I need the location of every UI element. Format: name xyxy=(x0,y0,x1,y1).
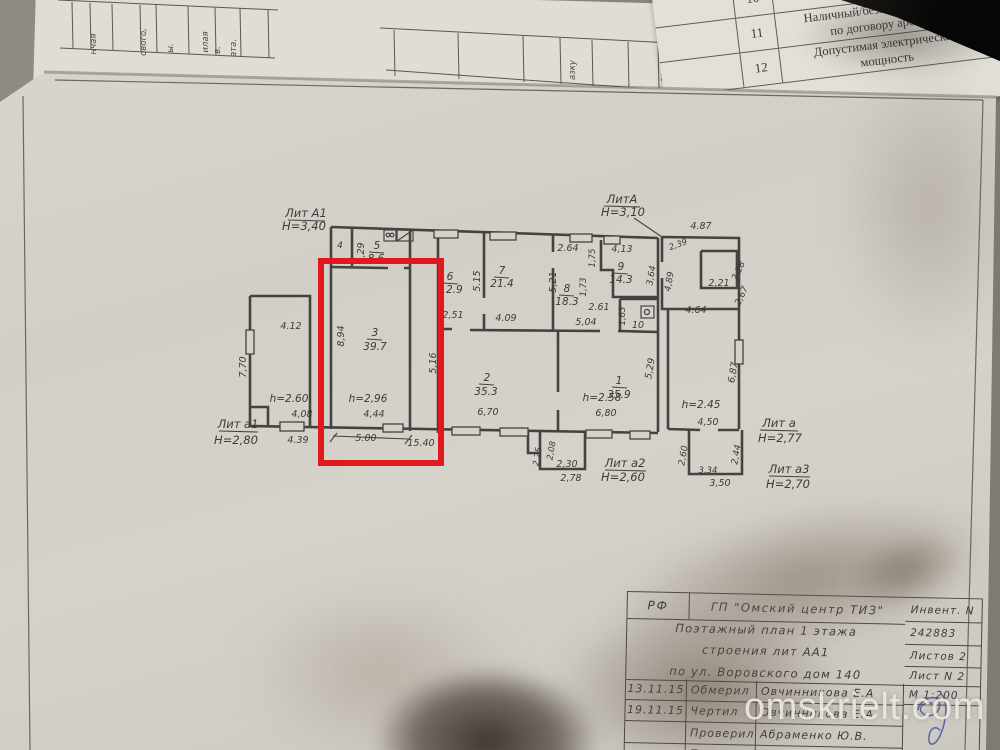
title-block-date: 19.11.15 xyxy=(625,699,686,722)
inventory-label: Инвент. N xyxy=(905,598,982,624)
sheet-number: Лист N 2 xyxy=(904,667,981,688)
watermark: omskrielt.com xyxy=(744,686,985,729)
title-line-2: строения лит АА1 xyxy=(702,640,830,664)
title-block-date: 13.11.15 xyxy=(626,678,687,701)
title-block-role: Принял xyxy=(685,744,755,750)
row-number: 12 xyxy=(739,49,783,88)
inventory-number: 242883 xyxy=(905,622,982,647)
photographed-floor-plan-document: 10 Договор арендыгода 11 Наличный/безнал… xyxy=(0,0,1000,750)
drawing-title: Поэтажный план 1 этажа строения лит АА1 … xyxy=(626,619,905,686)
rf-cell: РФ xyxy=(627,592,690,619)
title-block-date xyxy=(624,742,685,750)
red-highlight-box xyxy=(318,258,444,466)
title-block-date xyxy=(625,721,686,744)
row-number: 11 xyxy=(735,14,779,53)
sheets-count: Листов 2 xyxy=(904,645,981,669)
